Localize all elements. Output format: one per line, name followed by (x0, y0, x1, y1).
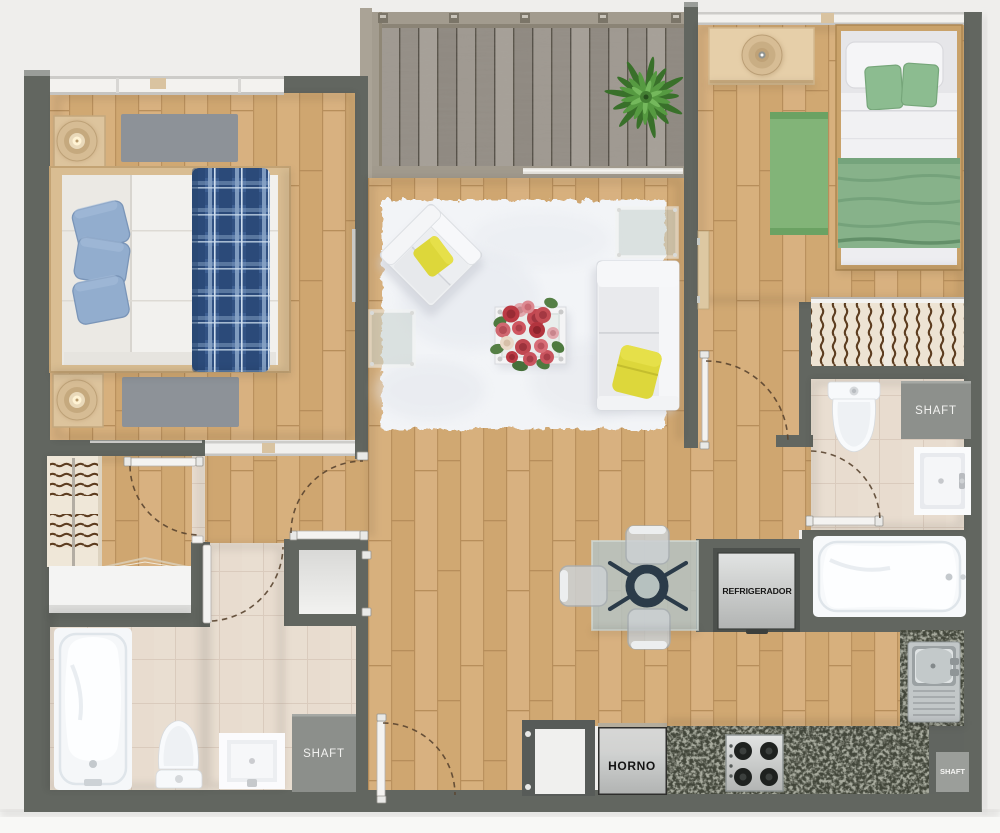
svg-text:SHAFT: SHAFT (915, 405, 957, 417)
svg-text:SHAFT: SHAFT (303, 748, 345, 760)
svg-text:REFRIGERADOR: REFRIGERADOR (722, 586, 792, 596)
svg-text:SHAFT: SHAFT (940, 767, 965, 776)
svg-text:HORNO: HORNO (608, 759, 656, 773)
